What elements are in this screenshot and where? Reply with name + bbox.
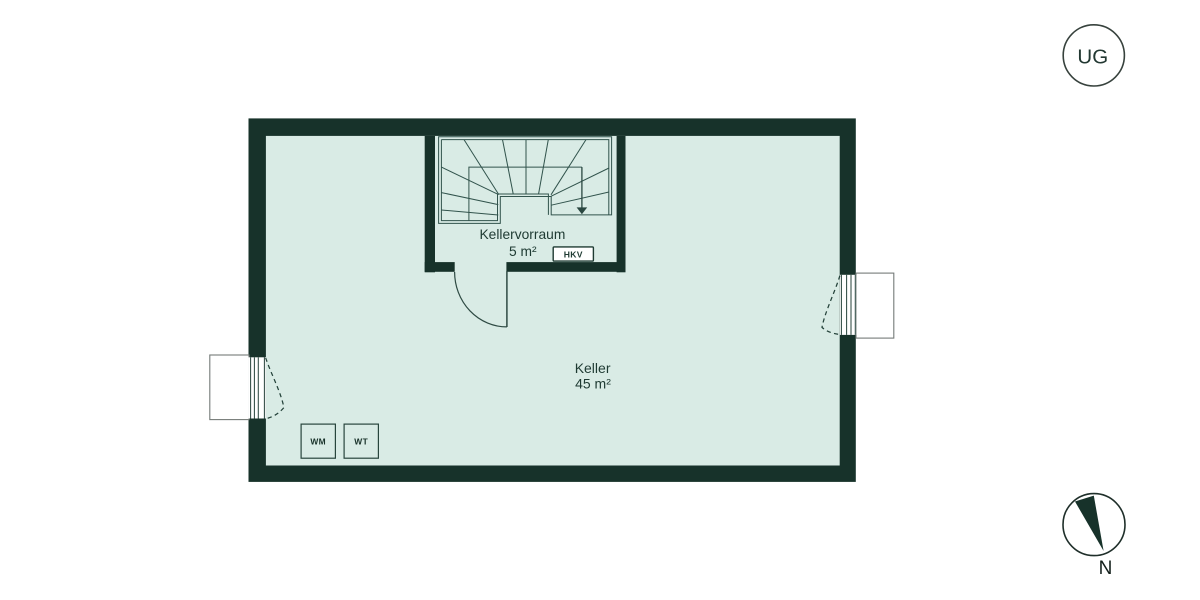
- svg-text:UG: UG: [1077, 46, 1108, 69]
- svg-text:Kellervorraum: Kellervorraum: [479, 227, 565, 242]
- svg-text:Keller: Keller: [575, 360, 611, 376]
- svg-text:HKV: HKV: [564, 249, 583, 259]
- svg-text:45 m²: 45 m²: [575, 375, 611, 391]
- svg-text:WM: WM: [310, 436, 326, 446]
- svg-text:WT: WT: [354, 436, 368, 446]
- svg-text:5 m²: 5 m²: [509, 244, 537, 259]
- svg-text:N: N: [1099, 558, 1113, 579]
